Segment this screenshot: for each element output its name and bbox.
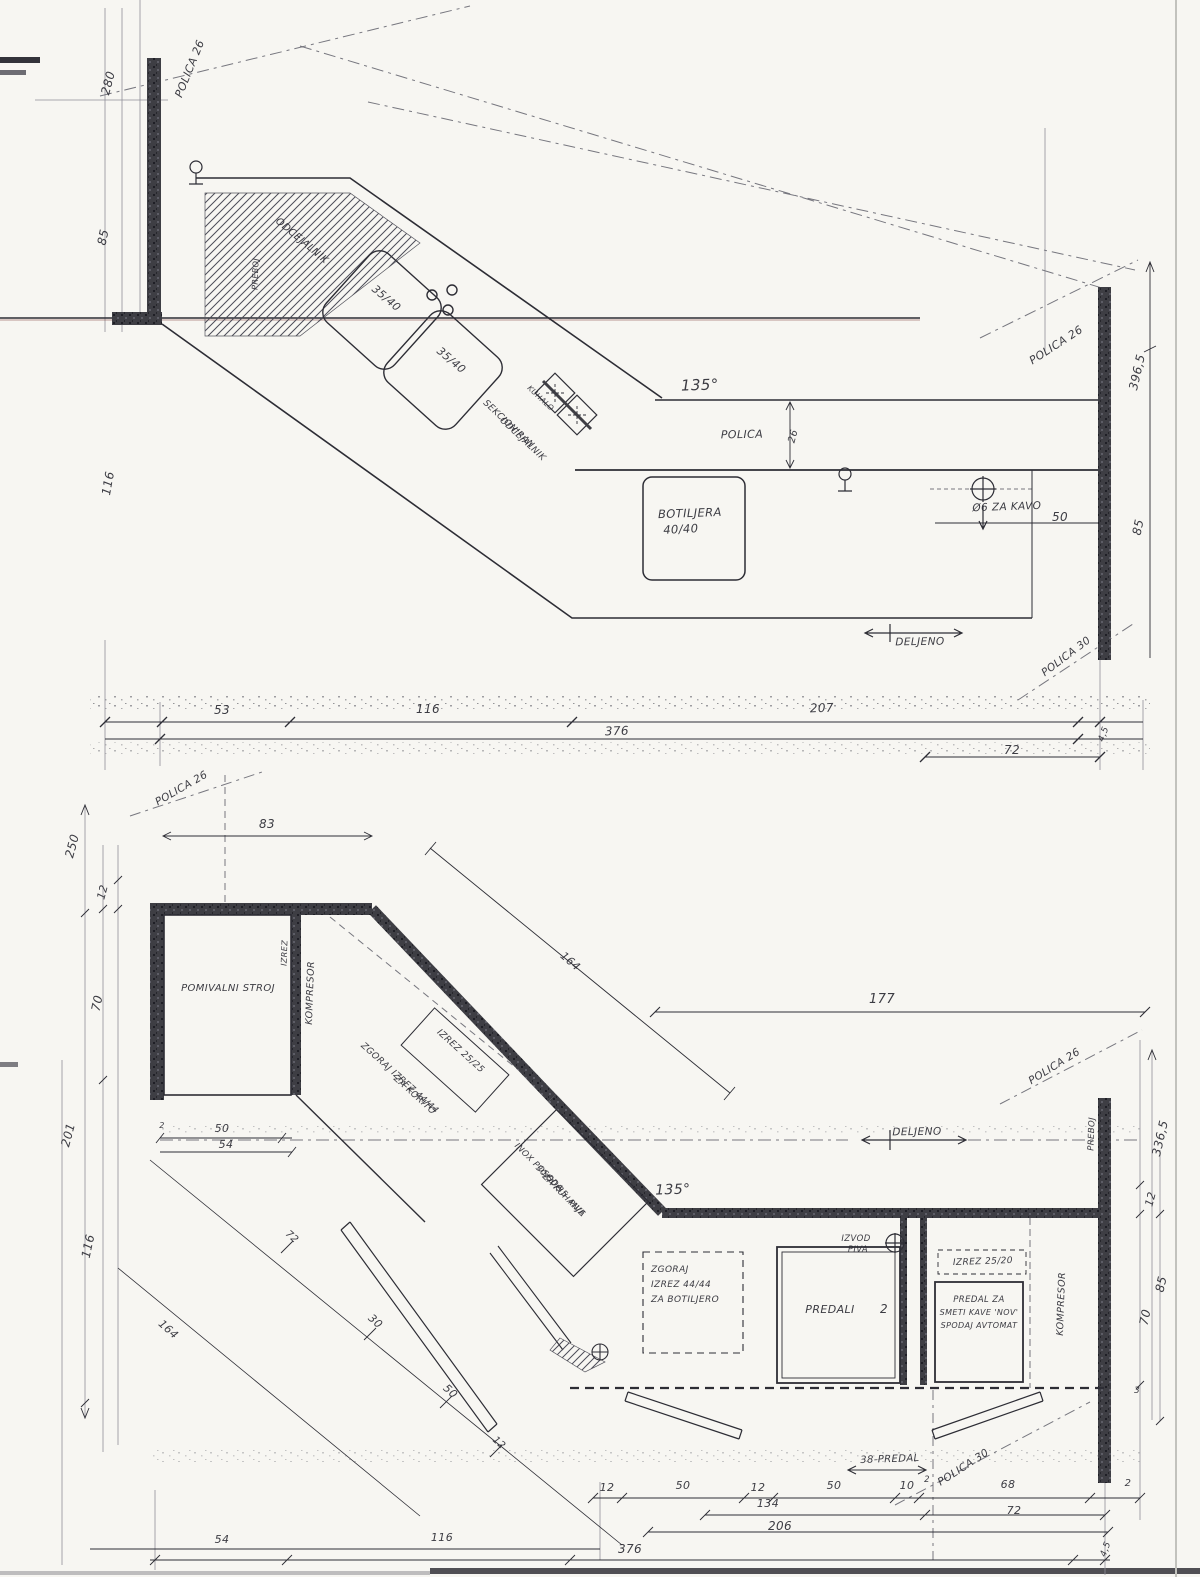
- annotation-preboj: PREBOJ: [1086, 1117, 1097, 1151]
- annotation-72: 72: [283, 1229, 300, 1246]
- annotation-za-botiljero: ZA BOTILJERO: [650, 1295, 719, 1305]
- annotation-207: 207: [810, 701, 835, 716]
- annotation-2: 2: [1125, 1478, 1132, 1489]
- annotation-116: 116: [416, 702, 440, 716]
- annotation-polica-26: POLICA 26: [172, 38, 207, 99]
- annotation-polica-26: POLICA 26: [1027, 323, 1085, 367]
- annotation-53: 53: [214, 703, 230, 717]
- annotation-26: 26: [787, 428, 801, 444]
- annotation-kompresor: KOMPRESOR: [1055, 1272, 1068, 1336]
- left-wall: [150, 903, 164, 1100]
- annotation-spodaj-avtomat: SPODAJ AVTOMAT: [941, 1321, 1018, 1330]
- annotation-12: 12: [600, 1481, 615, 1494]
- annotation--6-za-kavo: Ø6 ZA KAVO: [971, 500, 1041, 514]
- annotation-116: 116: [431, 1531, 453, 1544]
- annotation-116: 116: [79, 1233, 98, 1259]
- annotation-85: 85: [1152, 1275, 1169, 1294]
- top-wall: [150, 903, 372, 915]
- faucet-hole: [427, 290, 437, 300]
- annotation-12: 12: [1142, 1190, 1158, 1208]
- top-plan-annotations: POLICA 2628085PREBOJ116ODCEJALNIK35/4035…: [95, 38, 1148, 757]
- beer-line-outlet-icon: [592, 1344, 608, 1360]
- annotation-50: 50: [1052, 510, 1068, 524]
- left-wall: [147, 58, 161, 320]
- annotation-piva: PIVA: [566, 1198, 587, 1219]
- annotation-164: 164: [156, 1317, 181, 1342]
- annotation-50: 50: [215, 1122, 230, 1135]
- annotation-12: 12: [94, 883, 110, 901]
- annotation-10: 10: [900, 1479, 915, 1492]
- annotation-12: 12: [751, 1481, 766, 1494]
- walls: [112, 58, 1111, 660]
- annotation-54: 54: [215, 1533, 230, 1546]
- floor-plan-drawing: POLICA 2628085PREBOJ116ODCEJALNIK35/4035…: [0, 0, 1200, 1577]
- annotation-2: 2: [880, 1302, 888, 1316]
- dash-dot-projection-lines: [100, 6, 1138, 700]
- annotation-85: 85: [95, 228, 112, 247]
- annotation-piva: PIVA: [848, 1245, 868, 1255]
- annotation-zgoraj: ZGORAJ: [650, 1265, 689, 1275]
- annotation-preboj: PREBOJ: [250, 258, 260, 291]
- annotation-deljeno: DELJENO: [895, 636, 944, 649]
- right-wall: [1098, 1098, 1111, 1483]
- annotation-polica-30: POLICA 30: [1039, 634, 1093, 679]
- dishwasher-box: [164, 915, 291, 1095]
- annotation-polica: POLICA: [721, 428, 764, 442]
- annotation-336-5: 336,5: [1149, 1119, 1171, 1158]
- annotation-35-40: 35/40: [369, 283, 403, 315]
- walls: [150, 903, 1111, 1483]
- annotation-376: 376: [605, 724, 630, 739]
- annotation-54: 54: [219, 1138, 234, 1151]
- annotation-izrez-25-20: IZREZ 25/20: [953, 1256, 1013, 1268]
- annotation-2: 2: [924, 1475, 930, 1485]
- corner-hatch-piece: [550, 1338, 605, 1372]
- annotation-50: 50: [827, 1479, 842, 1492]
- annotation-kompresor: KOMPRESOR: [304, 961, 317, 1025]
- annotation-deljeno: DELJENO: [892, 1126, 941, 1139]
- annotation-396-5: 396,5: [1126, 353, 1148, 392]
- annotation-116: 116: [99, 470, 117, 496]
- annotation-50: 50: [440, 1382, 460, 1402]
- annotation-smeti-kave-nov-: SMETI KAVE 'NOV': [940, 1308, 1019, 1317]
- annotation-85: 85: [1130, 518, 1147, 537]
- annotation-pomivalni-stroj: POMIVALNI STROJ: [181, 983, 275, 994]
- top-plan: [0, 0, 1156, 770]
- annotation-odcejalnik: ODCEJALNIK: [497, 416, 548, 464]
- annotation-30: 30: [365, 1312, 385, 1332]
- faucet-hole: [447, 285, 457, 295]
- annotation-izrez-44-44: IZREZ 44/44: [651, 1280, 711, 1290]
- diagonal-wall-upper: [372, 909, 552, 1098]
- annotation-botiljera: BOTILJERA: [658, 505, 722, 521]
- cabinet-fronts: [296, 1095, 1105, 1439]
- annotation-izrez-25-25: IZREZ 25/25: [435, 1028, 486, 1076]
- annotation-38-predal: 38-PREDAL: [860, 1453, 920, 1466]
- annotation-2: 2: [159, 1121, 165, 1130]
- cabinet-divider-b: [920, 1213, 927, 1385]
- annotation-polica-26: POLICA 26: [1026, 1046, 1082, 1087]
- annotation-za-korito: ZA KORITO: [391, 1073, 438, 1117]
- annotation-68: 68: [1001, 1478, 1016, 1491]
- dash-lines: [130, 772, 1142, 1560]
- annotation-35-40: 35/40: [434, 345, 468, 377]
- annotation-83: 83: [259, 817, 275, 831]
- drainer-hatch-area: [205, 193, 420, 336]
- right-wall: [1098, 287, 1111, 660]
- annotation-280: 280: [98, 70, 118, 97]
- annotation-250: 250: [62, 833, 82, 860]
- annotation-134: 134: [757, 1497, 779, 1510]
- annotation-206: 206: [768, 1519, 792, 1533]
- divider-wall: [291, 915, 301, 1095]
- annotation-predal-za: PREDAL ZA: [953, 1295, 1004, 1305]
- annotation-177: 177: [869, 992, 895, 1007]
- left-wall-foot: [112, 312, 162, 325]
- annotation-50: 50: [676, 1479, 691, 1492]
- annotation-polica-26: POLICA 26: [153, 769, 210, 809]
- annotation-376: 376: [618, 1542, 642, 1556]
- sink-35-40-b: [378, 305, 508, 435]
- annotation-72: 72: [1007, 1504, 1022, 1517]
- annotation-135-: 135°: [681, 375, 719, 394]
- annotation-izvod: IZVOD: [841, 1234, 870, 1244]
- annotation-70: 70: [1137, 1308, 1154, 1327]
- construction-lines: [35, 0, 1143, 770]
- annotation-72: 72: [1004, 743, 1020, 757]
- scanned-floor-plan-page: POLICA 2628085PREBOJ116ODCEJALNIK35/4035…: [0, 0, 1200, 1577]
- annotation-4-5: 4,5: [1099, 1540, 1114, 1558]
- annotation-3: 3: [1134, 1386, 1140, 1396]
- annotation-4-5: 4,5: [1097, 725, 1112, 743]
- annotation-izrez: IZREZ: [280, 940, 290, 966]
- annotation-201: 201: [58, 1122, 78, 1149]
- annotation-predali: PREDALI: [805, 1303, 854, 1316]
- annotation-40-40: 40/40: [663, 521, 699, 537]
- annotation-135-: 135°: [655, 1181, 691, 1198]
